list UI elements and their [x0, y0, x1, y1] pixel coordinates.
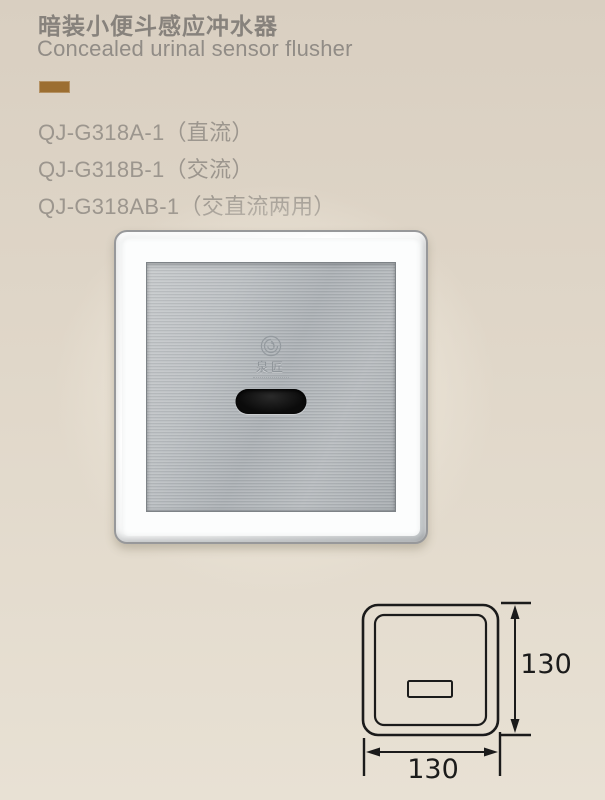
drawing-inner-square — [375, 615, 486, 725]
brushed-steel-plate: 泉匠 — [146, 262, 396, 512]
dimension-drawing: 130 130 — [350, 595, 580, 795]
arrow-left-icon — [366, 748, 380, 757]
width-dimension-label: 130 — [407, 754, 459, 785]
product-photo: 泉匠 — [114, 230, 428, 544]
arrow-right-icon — [484, 748, 498, 757]
catalog-page: 暗装小便斗感应冲水器 Concealed urinal sensor flush… — [0, 0, 605, 800]
brand-logo: 泉匠 — [211, 335, 331, 378]
drawing-outer-square — [363, 605, 498, 735]
arrow-up-icon — [511, 605, 520, 619]
accent-dash — [39, 81, 70, 93]
model-number-dc: QJ-G318A-1（直流） — [38, 115, 254, 147]
height-dimension-label: 130 — [520, 649, 572, 680]
brand-subtext — [253, 377, 289, 378]
brand-name: 泉匠 — [211, 358, 331, 375]
phoenix-swirl-icon — [260, 335, 282, 357]
page-subtitle: Concealed urinal sensor flusher — [37, 36, 353, 62]
drawing-sensor-window — [408, 681, 452, 697]
model-number-ac: QJ-G318B-1（交流） — [38, 152, 254, 184]
arrow-down-icon — [511, 719, 520, 733]
infrared-sensor-window — [236, 389, 307, 414]
